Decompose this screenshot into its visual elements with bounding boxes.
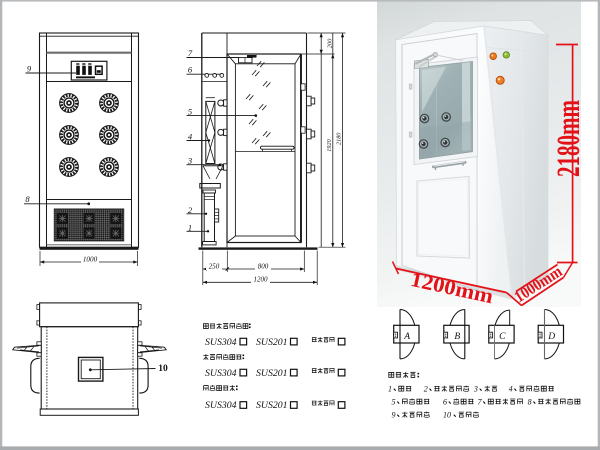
svg-text:1200: 1200 [254,276,269,284]
svg-text:5: 5 [188,107,192,117]
svg-text:1: 1 [388,385,392,394]
svg-text:1: 1 [188,222,192,232]
svg-text:A: A [403,332,410,342]
svg-text:SUS201: SUS201 [256,368,288,379]
svg-text:10: 10 [158,364,168,374]
svg-text:9: 9 [392,411,396,420]
svg-text:2180mm: 2180mm [551,100,587,177]
svg-text:3: 3 [187,156,192,166]
svg-text:2: 2 [424,385,428,394]
svg-text:SUS304: SUS304 [205,337,237,348]
svg-text:250: 250 [209,262,220,270]
svg-text:6: 6 [443,397,447,406]
svg-text:SUS304: SUS304 [205,400,237,411]
svg-text:1920: 1920 [326,138,333,151]
svg-text:B: B [454,332,460,342]
svg-text:SUS304: SUS304 [205,368,237,379]
svg-text:SUS201: SUS201 [256,400,288,411]
svg-text:5: 5 [392,397,396,406]
svg-text:800: 800 [258,262,269,270]
svg-text:2180: 2180 [336,132,343,145]
svg-text:10: 10 [443,411,451,420]
svg-text:3: 3 [473,385,478,394]
svg-text:D: D [547,332,555,342]
svg-text:4: 4 [509,385,513,394]
svg-text:200: 200 [326,38,333,48]
svg-text:1000: 1000 [83,256,98,264]
svg-text:8: 8 [528,397,532,406]
svg-text:C: C [499,332,506,342]
svg-text:SUS201: SUS201 [256,337,288,348]
